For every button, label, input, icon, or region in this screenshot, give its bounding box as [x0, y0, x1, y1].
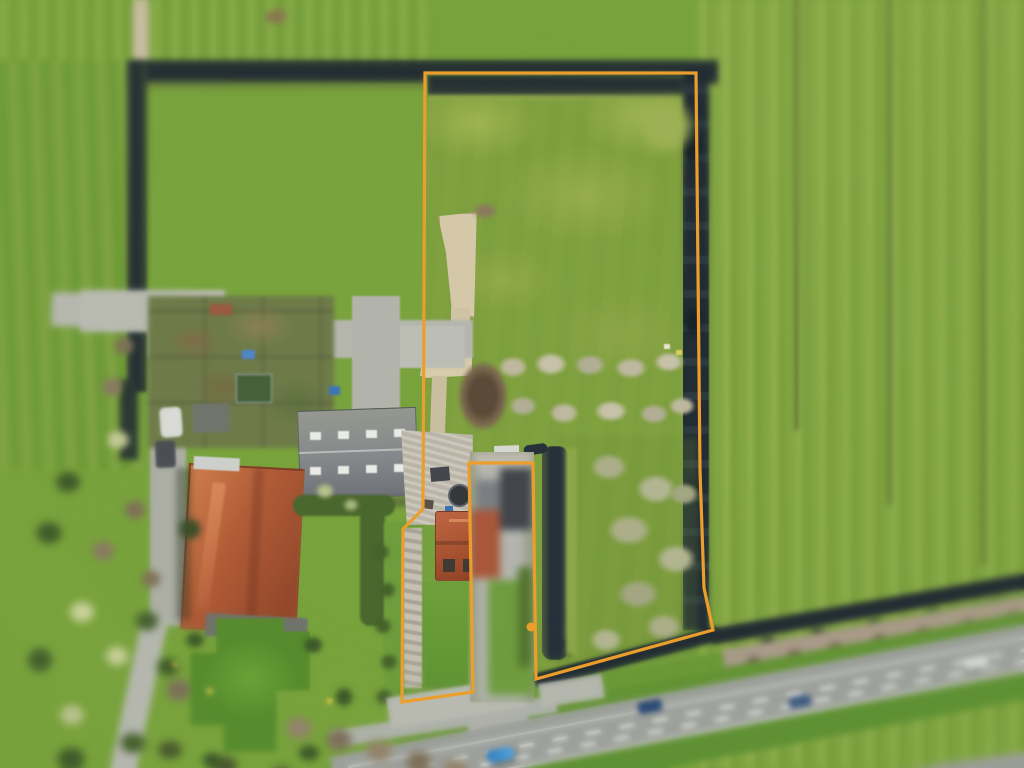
field-right-ditch-1 — [795, 0, 798, 430]
canal-middle-east-bank — [566, 448, 577, 654]
garden-bin-blue — [329, 386, 340, 395]
garden-red-items — [210, 304, 232, 315]
privacy-blur-region — [470, 452, 534, 702]
lawn-shrub — [292, 740, 326, 766]
lawn-shrub — [298, 632, 328, 658]
house-dark-bit — [422, 499, 434, 509]
field-right-ditch-3 — [982, 0, 985, 565]
shrub-column — [368, 540, 394, 564]
garden-greenhouse — [236, 374, 272, 403]
tree-bare — [118, 495, 152, 525]
privacy-blur-content — [470, 452, 534, 702]
house-trampoline — [448, 484, 471, 507]
scrub-bush — [608, 353, 654, 383]
tree-dark-row — [150, 735, 190, 765]
tree-bare — [85, 535, 121, 567]
plot-speck-light — [664, 344, 670, 349]
plot-corner-light — [628, 84, 706, 168]
shrub-column — [374, 578, 400, 602]
lawn-flower-yellow — [326, 698, 333, 704]
tree-bare — [108, 332, 140, 360]
lawn-flower-yellow — [206, 688, 213, 694]
tree-blossom — [98, 640, 136, 672]
plot-speck-yellow — [676, 350, 682, 355]
tree-blossom-small — [312, 480, 338, 502]
garden-tarp-blue — [242, 350, 255, 359]
barn-gray-skylight — [338, 466, 349, 474]
tree-blossom — [62, 595, 102, 629]
lawn-flower-yellow — [172, 662, 178, 667]
lawn-shrub — [330, 682, 358, 712]
tree-blossom-small — [340, 496, 362, 514]
tree-dark — [112, 726, 154, 760]
scrub-bush — [543, 398, 585, 428]
plot-dirt-top — [468, 200, 502, 222]
plot-scrub-tint — [558, 438, 698, 658]
yard-tree-shadow — [172, 512, 208, 546]
scrub-bush — [568, 350, 612, 380]
barn-terracotta-roof — [180, 463, 305, 635]
tree-dark — [150, 652, 186, 682]
tree-dark — [48, 465, 88, 499]
scrub-bush — [588, 396, 634, 426]
tree-dark — [48, 740, 94, 768]
farm-caravan — [159, 406, 183, 437]
farm-pad-east — [393, 326, 465, 368]
tree-dark — [20, 640, 60, 680]
scrub-bush — [648, 348, 690, 376]
canal-middle — [542, 446, 568, 660]
blur-strip-hedge — [518, 567, 532, 667]
strip-rubble-path — [404, 528, 422, 700]
barn-gray-skylight — [338, 431, 349, 439]
hedge-east — [360, 508, 385, 626]
tree-blossom — [52, 698, 92, 732]
blur-strip-red-roof-part — [470, 510, 500, 578]
barn-gray-skylight — [366, 465, 377, 473]
house-dormer — [443, 559, 455, 572]
scrub-bush — [503, 392, 543, 420]
field-right-ditch-2 — [888, 0, 891, 505]
barn-gray-skylight — [310, 467, 321, 475]
tree-blossom — [100, 425, 136, 455]
aerial-photo — [0, 0, 1024, 768]
shrub-column — [370, 614, 396, 638]
garden-shed — [192, 403, 230, 433]
field-top-path — [133, 0, 149, 64]
barn-terracotta-north-cap — [193, 456, 240, 471]
scrub-bush — [663, 393, 701, 419]
house-machine-dark — [430, 466, 450, 482]
tree-bare-row — [358, 733, 400, 768]
blur-strip-pale-top — [474, 452, 532, 466]
lawn-shrub — [180, 628, 210, 652]
blur-strip-dark-building — [500, 468, 532, 530]
barn-gray-skylight — [366, 430, 377, 438]
barn-gray-skylight — [310, 432, 321, 440]
lawn-shrub — [196, 748, 228, 768]
field-top-left — [0, 0, 430, 66]
tree-dark — [28, 515, 70, 551]
shrub-column — [376, 650, 402, 674]
tree-bare — [95, 372, 129, 402]
tree-dark — [128, 605, 166, 637]
blur-strip-gray-structure — [476, 480, 500, 510]
farm-van-dark — [155, 440, 176, 468]
canal-top-bank — [128, 82, 426, 90]
tree-bare — [135, 565, 167, 593]
canal-right-shadow-2 — [680, 300, 706, 344]
